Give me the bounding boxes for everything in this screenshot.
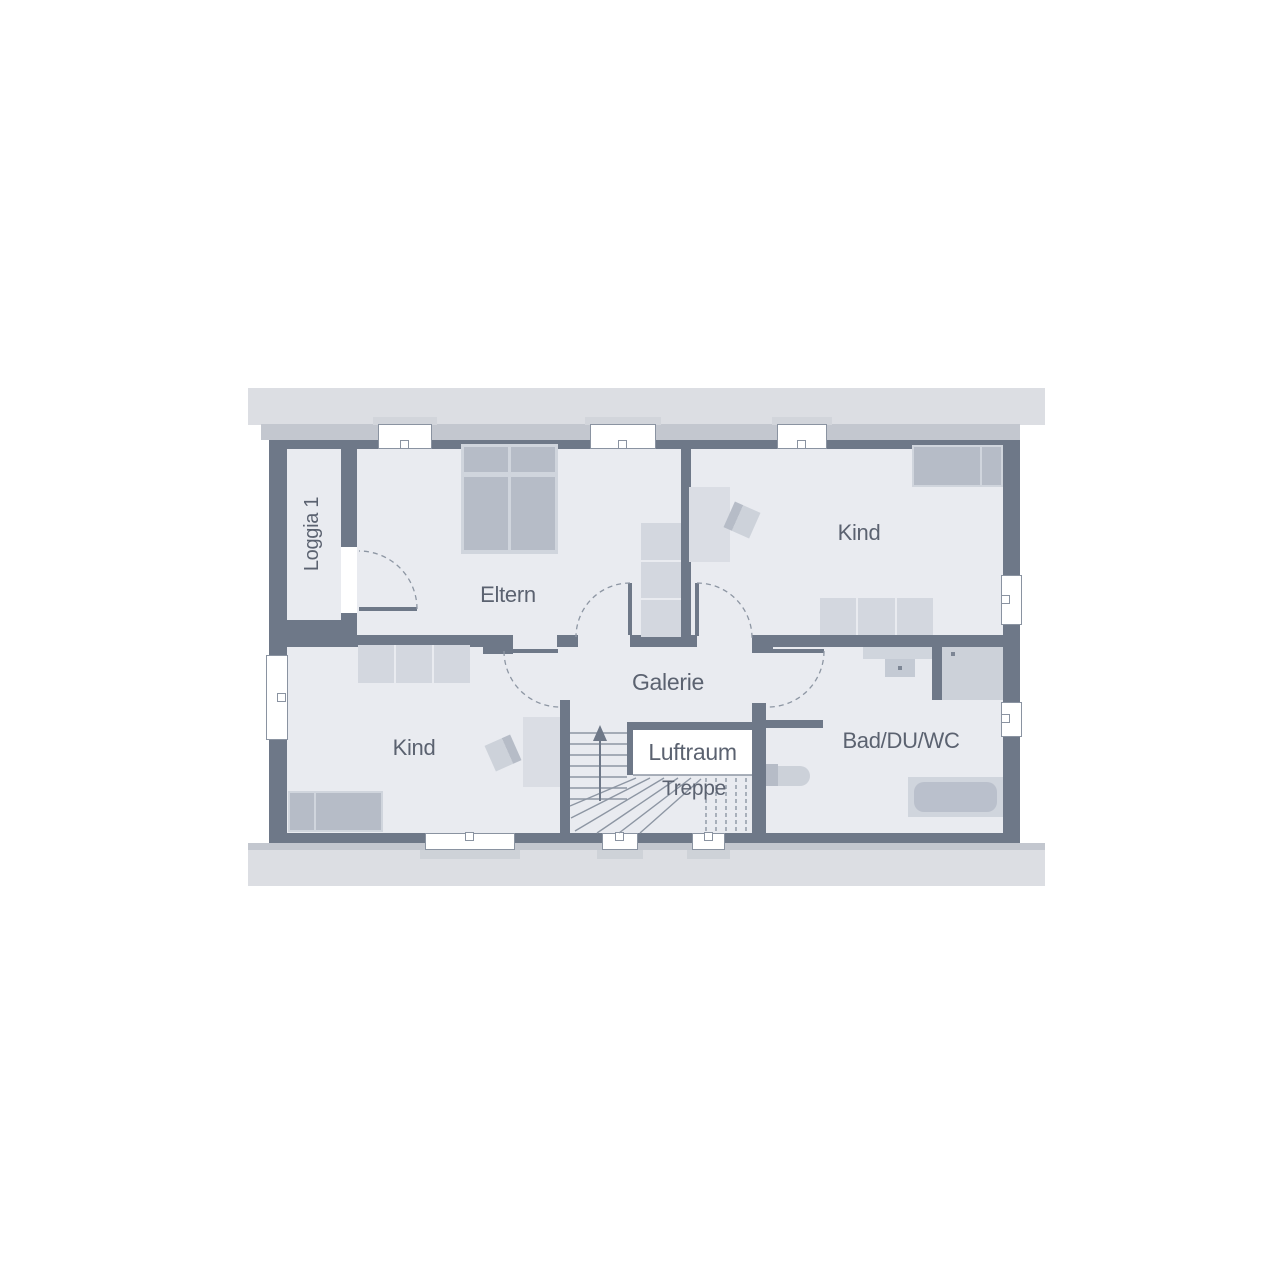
room-label-bath: Bad/DU/WC <box>821 728 981 754</box>
room-label-parents: Eltern <box>448 582 568 608</box>
bathtub-inner <box>914 782 997 812</box>
window-sill <box>597 850 643 859</box>
window-handle-icon <box>1001 714 1010 723</box>
drain-dot <box>898 666 902 670</box>
double-bed <box>461 444 558 554</box>
floor-plan-canvas: Luftraum <box>0 0 1280 1280</box>
wardrobe-section <box>358 645 394 683</box>
desk <box>523 717 560 787</box>
bathtub <box>908 777 1003 817</box>
window-handle-icon <box>277 693 286 702</box>
wall-horizontal-d <box>752 635 1020 647</box>
room-label-gallery: Galerie <box>598 669 738 696</box>
shower <box>942 647 1003 700</box>
toilet-tank <box>766 764 778 786</box>
drain-dot <box>951 652 955 656</box>
window-sill <box>687 850 730 859</box>
window-handle-icon <box>1001 595 1010 604</box>
window-handle-icon <box>400 440 409 449</box>
bed-pillow <box>464 447 508 472</box>
window-handle-icon <box>465 832 474 841</box>
wall-horizontal-b <box>557 635 578 647</box>
loggia-door-opening <box>341 547 357 613</box>
bed-pillow <box>982 447 1001 485</box>
wardrobe-section <box>396 645 432 683</box>
window-handle-icon <box>704 832 713 841</box>
wall-void-top <box>627 722 766 730</box>
wardrobe-section <box>641 523 681 560</box>
void-area: Luftraum <box>633 730 752 775</box>
window-handle-icon <box>797 440 806 449</box>
window-sill <box>420 850 520 859</box>
room-label-stairs: Treppe <box>634 777 754 801</box>
single-bed <box>288 791 383 832</box>
wardrobe-section <box>897 598 933 635</box>
wardrobe-section <box>820 598 856 635</box>
roof-strip-bottom <box>248 843 1045 850</box>
room-label-child-top: Kind <box>799 520 919 546</box>
washbasin <box>885 659 915 677</box>
wardrobe-child-top <box>820 598 933 635</box>
wardrobe-section <box>434 645 470 683</box>
room-label-loggia: Loggia 1 <box>301 464 323 604</box>
wardrobe-section <box>641 562 681 599</box>
vanity-counter <box>863 647 932 659</box>
wardrobe-section <box>641 600 681 637</box>
wall-stairwell-left <box>560 700 570 833</box>
wall-exterior-bottom <box>269 833 1020 843</box>
wall-door-step-child-bottom <box>483 635 513 654</box>
window-handle-icon <box>618 440 627 449</box>
wall-door-step-bath <box>752 647 773 653</box>
wall-loggia-right-upper <box>341 440 357 547</box>
bed-mattress <box>914 447 980 485</box>
bed-mattress <box>511 477 555 550</box>
wall-bath-stub <box>766 720 823 728</box>
room-label-child-bottom: Kind <box>354 735 474 761</box>
room-label-void: Luftraum <box>633 730 752 775</box>
bed-mattress <box>316 793 381 830</box>
bed-pillow <box>511 447 555 472</box>
roof-band-bottom <box>248 850 1045 886</box>
bed-pillow <box>290 793 314 830</box>
wardrobe-child-bottom <box>358 645 470 683</box>
toilet-bowl <box>778 766 810 786</box>
wall-shower-stub <box>932 647 942 700</box>
wardrobe-parents <box>641 523 681 637</box>
window-handle-icon <box>615 832 624 841</box>
wardrobe-section <box>858 598 894 635</box>
single-bed <box>912 445 1003 487</box>
bed-mattress <box>464 477 508 550</box>
